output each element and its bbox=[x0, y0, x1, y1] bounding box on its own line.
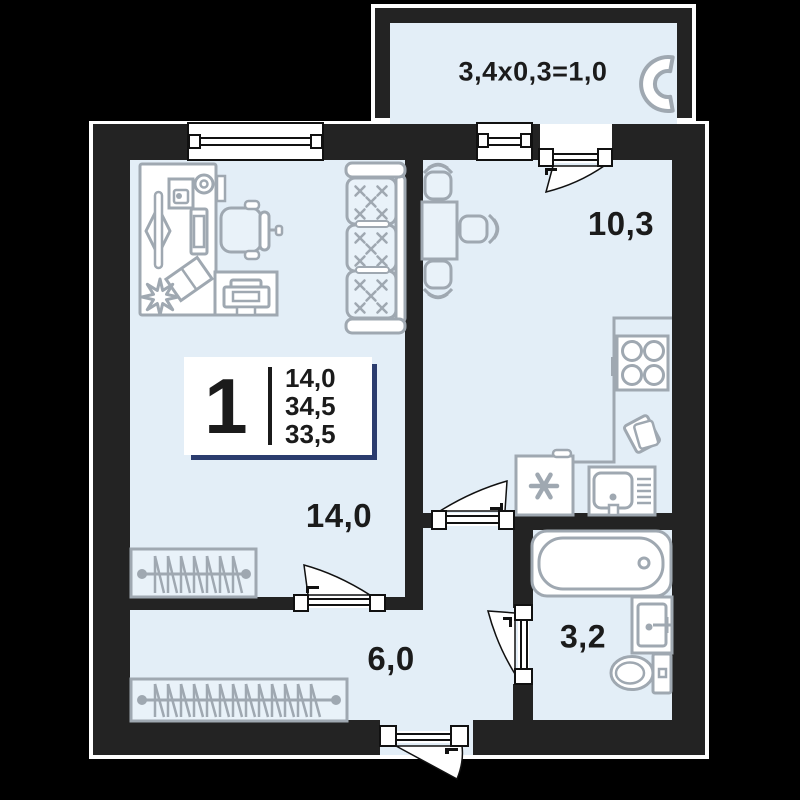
stove bbox=[611, 336, 668, 390]
area-line: 34,5 bbox=[285, 392, 336, 420]
area-list: 14,0 34,5 33,5 bbox=[272, 364, 336, 448]
living-area-label: 14,0 bbox=[306, 497, 372, 535]
balcony-dimension-label: 3,4x0,3=1,0 bbox=[459, 57, 608, 88]
apartment-info-card: 1 14,0 34,5 33,5 bbox=[184, 357, 372, 455]
kitchen-area-label: 10,3 bbox=[588, 205, 654, 243]
wardrobe-living bbox=[131, 549, 256, 597]
toilet bbox=[611, 654, 671, 693]
area-line: 14,0 bbox=[285, 364, 336, 392]
bath-area-label: 3,2 bbox=[560, 619, 606, 656]
floor-plan: 3,4x0,3=1,0 10,3 14,0 6,0 3,2 1 14,0 34,… bbox=[0, 0, 800, 800]
desk bbox=[140, 164, 225, 315]
kitchen-sink bbox=[589, 467, 655, 515]
bathtub bbox=[532, 531, 671, 596]
hall-area-label: 6,0 bbox=[367, 640, 414, 678]
window-balcony bbox=[477, 123, 532, 160]
fridge bbox=[516, 450, 573, 515]
bath-sink bbox=[632, 597, 672, 653]
wardrobe-hall bbox=[131, 679, 347, 721]
area-line: 33,5 bbox=[285, 420, 336, 448]
plant-icon bbox=[142, 279, 178, 315]
floor-plan-drawing bbox=[0, 0, 800, 800]
rooms-count: 1 bbox=[184, 361, 268, 451]
window-living bbox=[188, 123, 323, 160]
sofa bbox=[346, 163, 405, 333]
printer bbox=[215, 272, 277, 315]
